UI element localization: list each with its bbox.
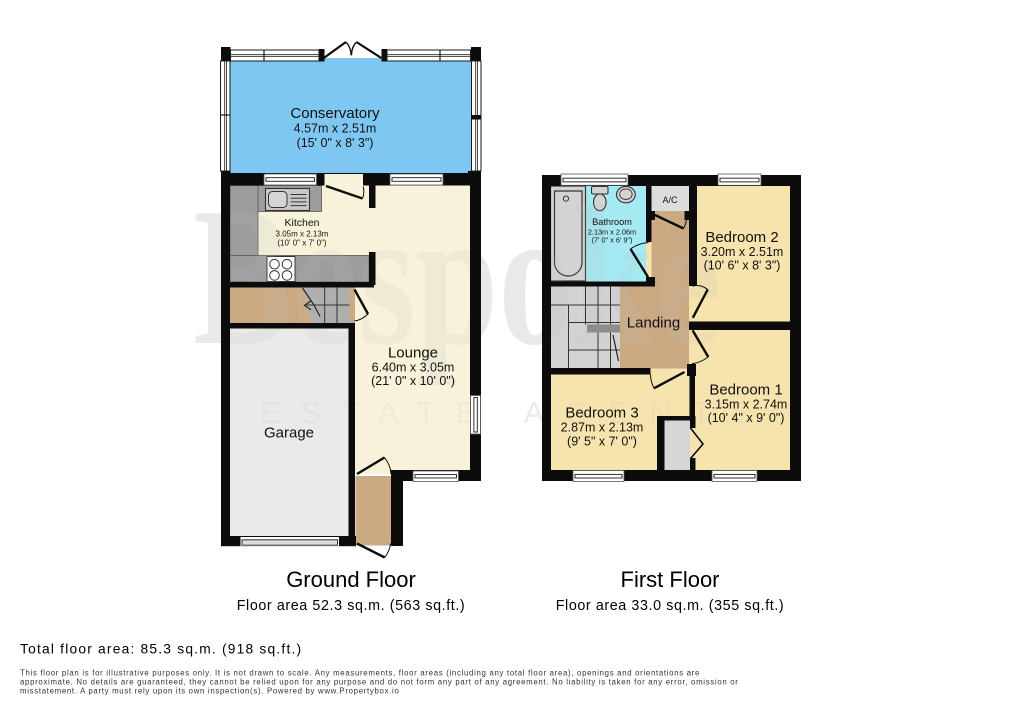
svg-text:3.20m x 2.51m: 3.20m x 2.51m xyxy=(701,245,784,259)
svg-text:(9' 5" x 7' 0"): (9' 5" x 7' 0") xyxy=(567,435,637,449)
svg-text:First Floor: First Floor xyxy=(621,567,720,592)
svg-text:approximate. No details are gu: approximate. No details are guaranteed, … xyxy=(20,678,739,687)
svg-text:Floor area 33.0 sq.m. (355 sq.: Floor area 33.0 sq.m. (355 sq.ft.) xyxy=(556,598,785,614)
svg-text:(7' 0" x 6' 9"): (7' 0" x 6' 9") xyxy=(592,236,633,245)
svg-text:Bathroom: Bathroom xyxy=(592,217,632,227)
svg-text:Floor area 52.3 sq.m. (563 sq.: Floor area 52.3 sq.m. (563 sq.ft.) xyxy=(237,598,466,614)
svg-text:(10' 4" x 9' 0"): (10' 4" x 9' 0") xyxy=(708,411,785,425)
svg-text:4.57m x 2.51m: 4.57m x 2.51m xyxy=(294,122,377,136)
svg-text:3.15m x 2.74m: 3.15m x 2.74m xyxy=(705,398,788,412)
svg-text:3.05m x 2.13m: 3.05m x 2.13m xyxy=(276,230,329,239)
svg-text:(21' 0" x 10' 0"): (21' 0" x 10' 0") xyxy=(371,374,455,388)
svg-text:(10' 6" x 8' 3"): (10' 6" x 8' 3") xyxy=(704,259,781,273)
svg-text:Bedroom 3: Bedroom 3 xyxy=(565,405,638,422)
svg-text:Garage: Garage xyxy=(264,425,314,442)
svg-text:This floor plan is for illustr: This floor plan is for illustrative purp… xyxy=(20,669,700,678)
svg-text:Total floor area: 85.3 sq.m. (: Total floor area: 85.3 sq.m. (918 sq.ft.… xyxy=(20,642,302,657)
svg-text:2.87m x 2.13m: 2.87m x 2.13m xyxy=(561,421,644,435)
svg-text:Bedroom 1: Bedroom 1 xyxy=(709,382,782,399)
svg-text:A/C: A/C xyxy=(662,195,678,205)
svg-text:Lounge: Lounge xyxy=(388,345,438,362)
svg-text:Conservatory: Conservatory xyxy=(290,105,380,122)
svg-text:Landing: Landing xyxy=(627,315,680,332)
svg-text:(10' 0" x 7' 0"): (10' 0" x 7' 0") xyxy=(277,239,327,248)
svg-text:Ground Floor: Ground Floor xyxy=(286,567,416,592)
svg-text:6.40m x 3.05m: 6.40m x 3.05m xyxy=(372,361,455,375)
svg-text:misstatement. A party must rel: misstatement. A party must rely upon its… xyxy=(20,687,400,696)
svg-text:Kitchen: Kitchen xyxy=(284,217,319,229)
svg-text:(15' 0" x 8' 3"): (15' 0" x 8' 3") xyxy=(297,136,374,150)
svg-text:Bedroom 2: Bedroom 2 xyxy=(705,229,778,246)
